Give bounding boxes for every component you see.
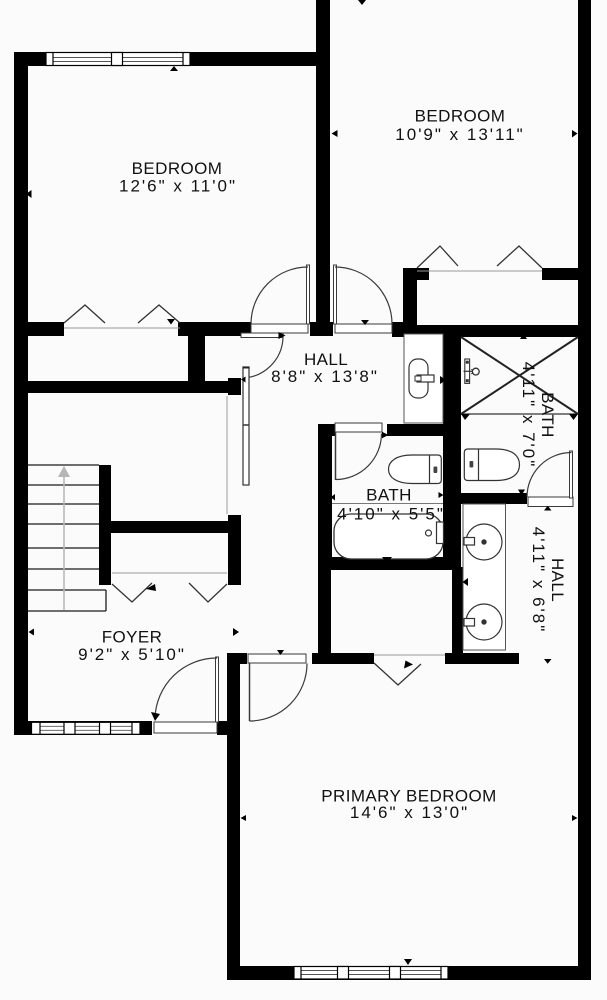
svg-text:8'8" x 13'8": 8'8" x 13'8" (271, 367, 379, 386)
svg-text:BATH: BATH (366, 486, 412, 505)
svg-text:FOYER: FOYER (102, 628, 163, 647)
svg-text:BATH: BATH (538, 392, 557, 438)
svg-text:10'9" x 13'11": 10'9" x 13'11" (395, 125, 524, 144)
svg-text:BEDROOM: BEDROOM (415, 107, 506, 126)
svg-text:BEDROOM: BEDROOM (132, 159, 223, 178)
svg-text:9'2" x 5'10": 9'2" x 5'10" (78, 645, 186, 664)
svg-text:HALL: HALL (548, 558, 567, 602)
svg-text:4'10" x 5'5": 4'10" x 5'5" (337, 505, 445, 524)
svg-text:4'11" x 6'8": 4'11" x 6'8" (529, 527, 548, 634)
svg-text:12'6" x 11'0": 12'6" x 11'0" (119, 177, 237, 196)
svg-text:14'6" x 13'0": 14'6" x 13'0" (350, 803, 469, 822)
svg-text:4'11" x 7'0": 4'11" x 7'0" (519, 362, 538, 469)
